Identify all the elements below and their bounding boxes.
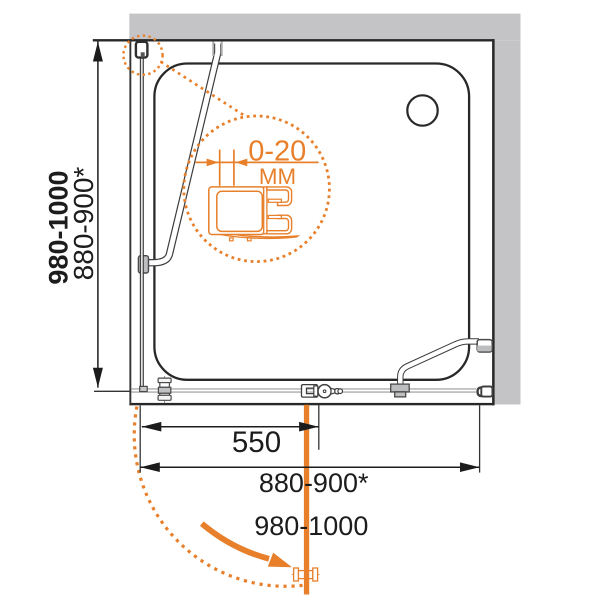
svg-text:980-1000: 980-1000 — [254, 511, 368, 541]
svg-text:ММ: ММ — [259, 164, 296, 189]
svg-text:880-900*: 880-900* — [68, 167, 99, 281]
svg-text:880-900*: 880-900* — [259, 468, 369, 498]
svg-text:0-20: 0-20 — [248, 136, 306, 168]
svg-text:550: 550 — [232, 426, 281, 459]
